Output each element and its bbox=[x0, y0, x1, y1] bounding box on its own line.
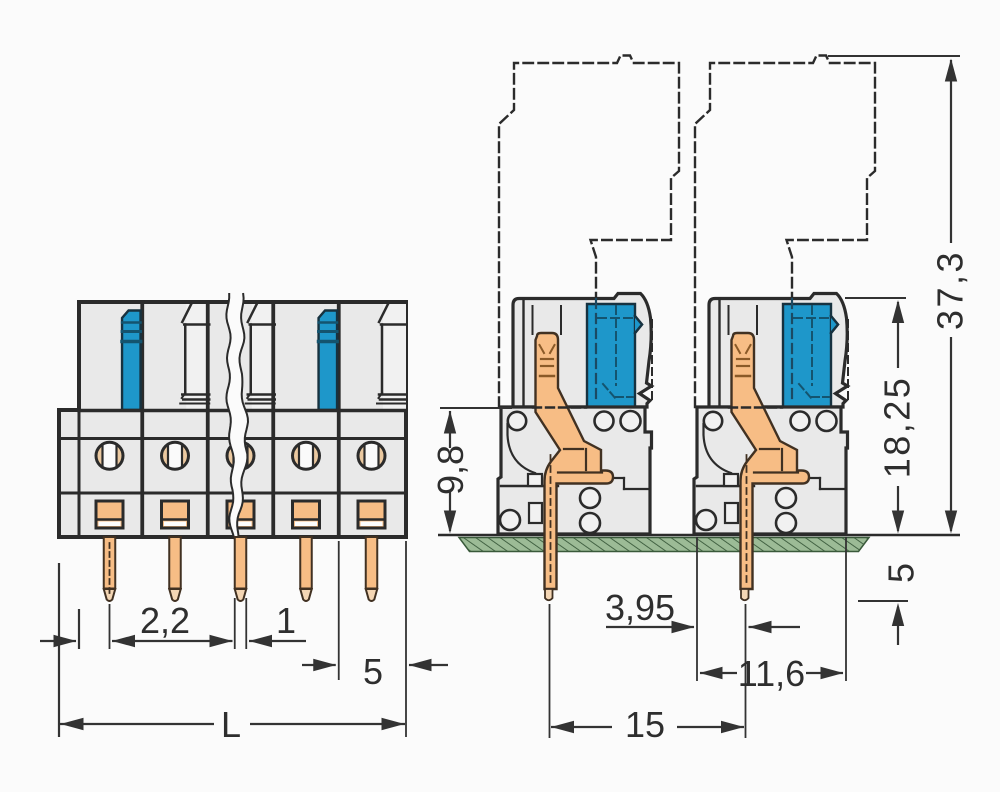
svg-text:11,6: 11,6 bbox=[738, 653, 805, 694]
svg-text:37,3: 37,3 bbox=[930, 250, 971, 330]
svg-text:18,25: 18,25 bbox=[877, 376, 918, 479]
svg-text:2,2: 2,2 bbox=[140, 600, 190, 641]
svg-text:1: 1 bbox=[276, 600, 296, 641]
svg-text:L: L bbox=[221, 704, 241, 745]
svg-text:5: 5 bbox=[881, 563, 922, 583]
svg-text:9,8: 9,8 bbox=[430, 445, 471, 495]
svg-text:15: 15 bbox=[625, 704, 665, 745]
svg-text:5: 5 bbox=[363, 651, 383, 692]
svg-text:3,95: 3,95 bbox=[605, 587, 675, 628]
